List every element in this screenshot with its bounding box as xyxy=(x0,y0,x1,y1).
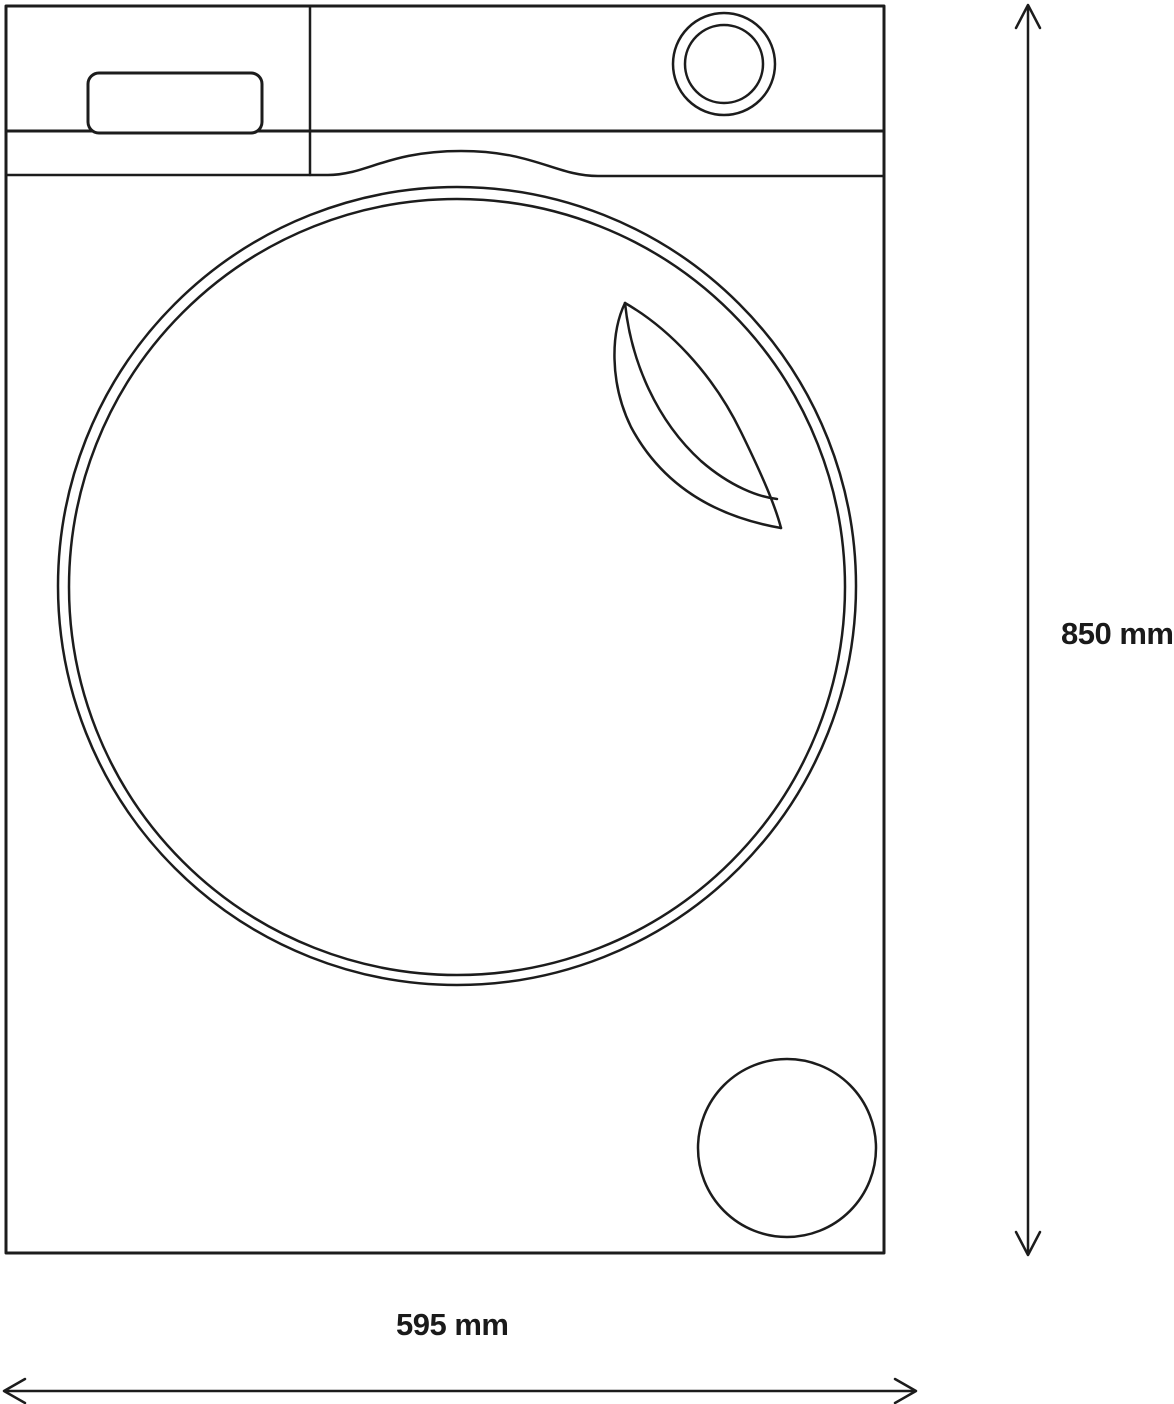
drain-filter-cap xyxy=(698,1059,876,1237)
door-inner-rim xyxy=(69,199,845,975)
detergent-drawer xyxy=(88,73,262,133)
technical-drawing-page: 850 mm 595 mm xyxy=(0,0,1174,1404)
washing-machine-diagram xyxy=(0,0,1174,1404)
program-knob-outer-ring xyxy=(673,13,775,115)
program-knob-inner-ring xyxy=(685,25,763,103)
door-outer-rim xyxy=(58,187,856,985)
door-glass-reflection-inner-curve xyxy=(625,303,777,499)
width-dimension-label: 595 mm xyxy=(396,1309,508,1340)
front-panel-seam-curve xyxy=(6,151,884,176)
height-dimension-label: 850 mm xyxy=(1061,618,1173,649)
